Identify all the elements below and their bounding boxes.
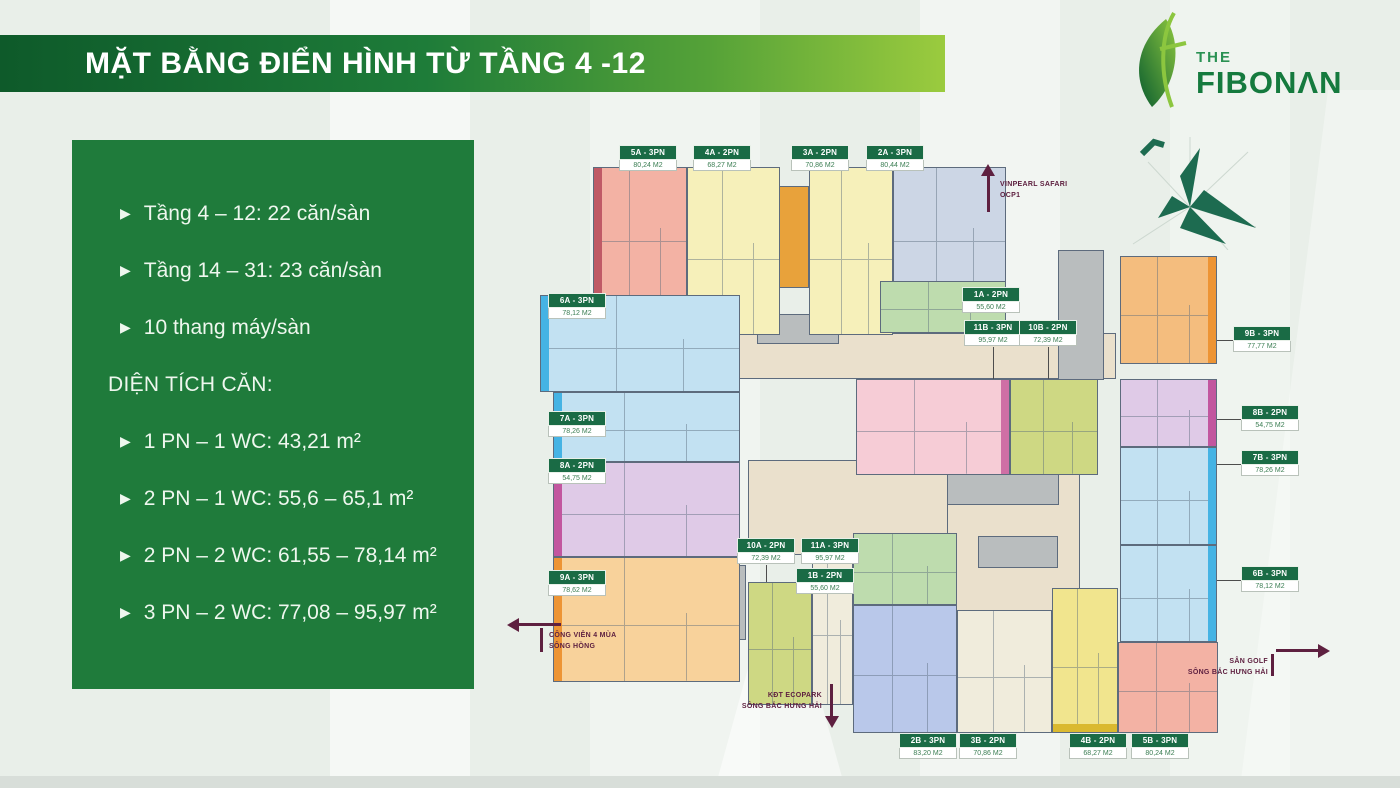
kitchen-core [779,186,809,288]
room-partitions [1121,448,1216,544]
area-heading: DIỆN TÍCH CĂN: [108,373,474,397]
unit-name: 10A - 2PN [737,538,795,553]
unit-area: 78,26 M2 [1241,465,1299,476]
unit-area: 78,62 M2 [548,585,606,596]
info-text: 3 PN – 2 WC: 77,08 – 95,97 m² [144,601,437,625]
bullet-icon: ▶ [120,490,131,507]
unit-area: 77,77 M2 [1233,341,1291,352]
unit-name: 4B - 2PN [1069,733,1127,748]
unit-area: 54,75 M2 [548,473,606,484]
logo-name: FIBONΛN [1196,67,1343,98]
unit-label-8B: 8B - 2PN54,75 M2 [1241,405,1299,431]
unit-name: 3B - 2PN [959,733,1017,748]
leaf-icon [1122,9,1190,113]
unit-area: 70,86 M2 [959,748,1017,759]
north-arrow-icon [981,164,995,176]
unit-label-3B: 3B - 2PN70,86 M2 [959,733,1017,759]
info-item: ▶ 2 PN – 1 WC: 55,6 – 65,1 m² [120,487,474,511]
bullet-icon: ▶ [120,262,131,279]
room-partitions [1121,380,1216,446]
south-arrow-shaft [830,684,833,716]
bullet-icon: ▶ [120,205,131,222]
info-item: ▶ 1 PN – 1 WC: 43,21 m² [120,430,474,454]
unit-name: 1A - 2PN [962,287,1020,302]
unit-label-5B: 5B - 3PN80,24 M2 [1131,733,1189,759]
unit-area: 78,26 M2 [548,426,606,437]
unit-label-2B: 2B - 3PN83,20 M2 [899,733,957,759]
west-arrow-tick [540,628,543,652]
unit-accent [1001,380,1009,474]
unit-name: 5B - 3PN [1131,733,1189,748]
unit-accent [594,168,602,302]
unit-label-4B: 4B - 2PN68,27 M2 [1069,733,1127,759]
unit-label-6A: 6A - 3PN78,12 M2 [548,293,606,319]
unit-label-10A: 10A - 2PN72,39 M2 [737,538,795,564]
unit-name: 2A - 3PN [866,145,924,160]
info-item: ▶ 3 PN – 2 WC: 77,08 – 95,97 m² [120,601,474,625]
unit-name: 11A - 3PN [801,538,859,553]
unit-name: 11B - 3PN [964,320,1022,335]
label-connector-line [1217,340,1233,341]
unit-label-11B: 11B - 3PN95,97 M2 [964,320,1022,346]
east-arrow-tick [1271,654,1274,676]
unit-block-4B [1052,588,1118,733]
unit-label-10B: 10B - 2PN72,39 M2 [1019,320,1077,346]
unit-accent [1053,724,1117,732]
unit-area: 78,12 M2 [548,308,606,319]
unit-area: 68,27 M2 [693,160,751,171]
east-arrow-shaft [1276,649,1318,652]
unit-area: 54,75 M2 [1241,420,1299,431]
unit-label-3A: 3A - 2PN70,86 M2 [791,145,849,171]
unit-label-9A: 9A - 3PN78,62 M2 [548,570,606,596]
unit-area: 55,60 M2 [962,302,1020,313]
label-connector-line [766,565,767,582]
unit-area: 80,44 M2 [866,160,924,171]
unit-label-6B: 6B - 3PN78,12 M2 [1241,566,1299,592]
room-partitions [854,534,956,604]
unit-label-1B: 1B - 2PN55,60 M2 [796,568,854,594]
page-title: MẶT BẰNG ĐIỂN HÌNH TỪ TẦNG 4 -12 [85,47,646,81]
unit-block-2B [853,605,957,733]
unit-name: 6A - 3PN [548,293,606,308]
compass-icon [1128,132,1258,250]
unit-area: 55,60 M2 [796,583,854,594]
unit-area: 72,39 M2 [737,553,795,564]
unit-accent [1208,257,1216,363]
unit-label-9B: 9B - 3PN77,77 M2 [1233,326,1291,352]
unit-block-7B [1120,447,1217,545]
label-connector-line [1217,580,1241,581]
unit-block-10B [1010,379,1098,475]
room-partitions [1053,589,1117,732]
unit-label-2A: 2A - 3PN80,44 M2 [866,145,924,171]
unit-block-6B [1120,545,1217,642]
unit-area: 83,20 M2 [899,748,957,759]
room-partitions [1121,546,1216,641]
brand-logo: THE FIBONΛN [1122,6,1382,116]
stair-core [1058,250,1104,380]
room-partitions [749,583,811,704]
bullet-icon: ▶ [120,604,131,621]
unit-name: 9B - 3PN [1233,326,1291,341]
footer-strip [0,776,1400,788]
unit-label-5A: 5A - 3PN80,24 M2 [619,145,677,171]
unit-area: 80,24 M2 [1131,748,1189,759]
unit-label-4A: 4A - 2PN68,27 M2 [693,145,751,171]
room-partitions [1121,257,1216,363]
north-arrow-shaft [987,176,990,212]
room-partitions [594,168,686,302]
bullet-icon: ▶ [120,547,131,564]
bullet-icon: ▶ [120,319,131,336]
east-direction-label: SÂN GOLF SÔNG BẮC HƯNG HẢI [1178,657,1268,678]
info-panel: ▶ Tầng 4 – 12: 22 căn/sàn ▶ Tầng 14 – 31… [72,140,474,689]
info-text: Tầng 4 – 12: 22 căn/sàn [144,202,371,226]
unit-name: 8B - 2PN [1241,405,1299,420]
stair-core [947,473,1059,505]
unit-name: 10B - 2PN [1019,320,1077,335]
unit-name: 1B - 2PN [796,568,854,583]
west-direction-label: CÔNG VIÊN 4 MÙA SÔNG HỒNG [549,631,617,652]
unit-label-8A: 8A - 2PN54,75 M2 [548,458,606,484]
unit-area: 68,27 M2 [1069,748,1127,759]
unit-name: 2B - 3PN [899,733,957,748]
east-arrow-icon [1318,644,1330,658]
west-arrow-shaft [519,623,561,626]
unit-block-11B [856,379,1010,475]
info-item: ▶ 10 thang máy/sàn [120,316,474,340]
south-arrow-icon [825,716,839,728]
info-text: 1 PN – 1 WC: 43,21 m² [144,430,361,454]
info-text: 2 PN – 2 WC: 61,55 – 78,14 m² [144,544,437,568]
title-bar: MẶT BẰNG ĐIỂN HÌNH TỪ TẦNG 4 -12 [0,35,945,92]
unit-block-9B [1120,256,1217,364]
unit-name: 9A - 3PN [548,570,606,585]
poster: MẶT BẰNG ĐIỂN HÌNH TỪ TẦNG 4 -12 THE FIB… [0,0,1400,788]
unit-label-7A: 7A - 3PN78,26 M2 [548,411,606,437]
room-partitions [857,380,1009,474]
unit-name: 8A - 2PN [548,458,606,473]
info-text: 10 thang máy/sàn [144,316,311,340]
room-partitions [854,606,956,732]
unit-area: 95,97 M2 [964,335,1022,346]
unit-name: 6B - 3PN [1241,566,1299,581]
unit-accent [1208,546,1216,641]
unit-block-8B [1120,379,1217,447]
unit-accent [1208,448,1216,544]
north-direction-label: VINPEARL SAFARI OCP1 [1000,180,1067,201]
info-item: ▶ 2 PN – 2 WC: 61,55 – 78,14 m² [120,544,474,568]
west-arrow-icon [507,618,519,632]
unit-area: 78,12 M2 [1241,581,1299,592]
unit-block-5B [1118,642,1218,733]
unit-label-11A: 11A - 3PN95,97 M2 [801,538,859,564]
unit-name: 7A - 3PN [548,411,606,426]
info-item: ▶ Tầng 4 – 12: 22 căn/sàn [120,202,474,226]
unit-name: 7B - 3PN [1241,450,1299,465]
logo-the: THE [1196,50,1343,65]
bullet-icon: ▶ [120,433,131,450]
info-item: ▶ Tầng 14 – 31: 23 căn/sàn [120,259,474,283]
unit-block-5A [593,167,687,303]
room-partitions [1011,380,1097,474]
label-connector-line [1217,464,1241,465]
elevator-core [978,536,1058,568]
unit-name: 5A - 3PN [619,145,677,160]
label-connector-line [1217,419,1241,420]
south-direction-label: KĐT ECOPARK SÔNG BẮC HƯNG HẢI [722,691,822,712]
unit-area: 80,24 M2 [619,160,677,171]
unit-block-10A [748,582,812,705]
info-text: 2 PN – 1 WC: 55,6 – 65,1 m² [144,487,414,511]
room-partitions [958,611,1051,732]
info-text: Tầng 14 – 31: 23 căn/sàn [144,259,382,283]
unit-label-1A: 1A - 2PN55,60 M2 [962,287,1020,313]
label-connector-line [1048,347,1049,379]
unit-block-3B [957,610,1052,733]
unit-accent [1208,380,1216,446]
unit-area: 95,97 M2 [801,553,859,564]
label-connector-line [993,347,994,379]
unit-area: 70,86 M2 [791,160,849,171]
unit-area: 72,39 M2 [1019,335,1077,346]
unit-label-7B: 7B - 3PN78,26 M2 [1241,450,1299,476]
unit-block-1B [853,533,957,605]
unit-name: 3A - 2PN [791,145,849,160]
unit-name: 4A - 2PN [693,145,751,160]
